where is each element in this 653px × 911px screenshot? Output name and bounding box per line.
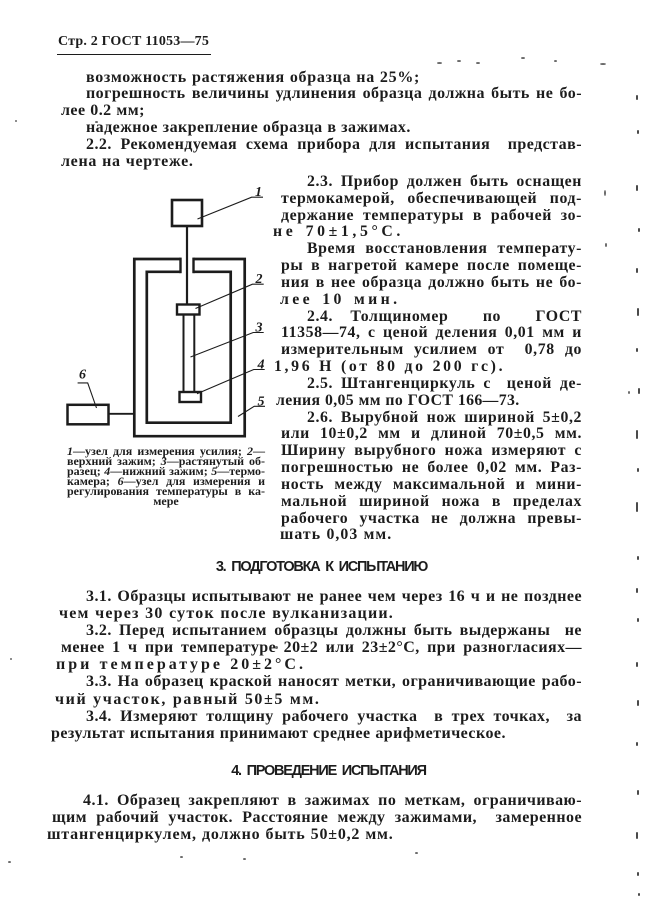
svg-text:6: 6 (79, 368, 86, 383)
svg-text:3: 3 (255, 321, 263, 336)
svg-text:4: 4 (257, 358, 265, 373)
svg-text:5: 5 (258, 395, 265, 410)
